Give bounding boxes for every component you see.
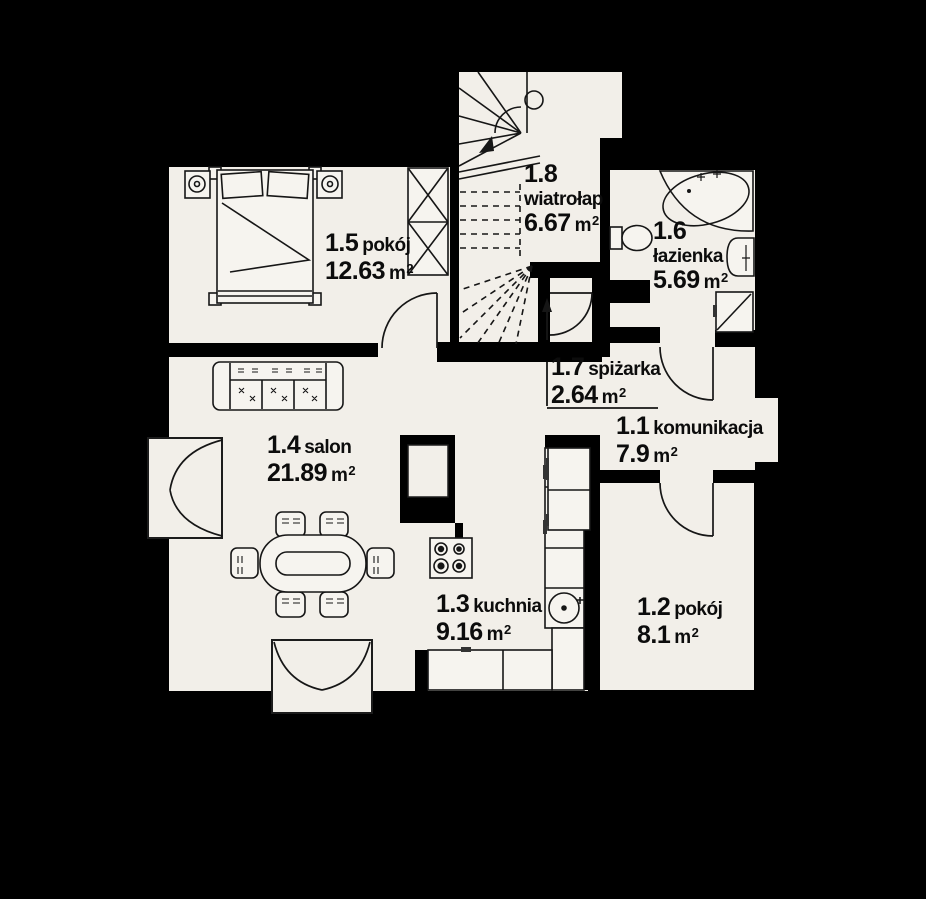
floor-stairs-lower bbox=[459, 262, 538, 348]
room-area: 9.16 m2 bbox=[436, 620, 542, 646]
room-label-salon: 1.4 salon 21.89 m2 bbox=[267, 433, 355, 486]
stove-icon bbox=[430, 538, 472, 578]
room-area: 7.9 m2 bbox=[616, 442, 763, 468]
room-label-spizarka: 1.7 spiżarka 2.64 m2 bbox=[551, 355, 660, 408]
shower-icon bbox=[713, 292, 753, 332]
floor-bedroom-door-opening bbox=[378, 343, 437, 362]
room-id-name: 1.4 salon bbox=[267, 433, 355, 459]
room-id-name: 1.5 pokój bbox=[325, 231, 413, 257]
room-area: 21.89 m2 bbox=[267, 461, 355, 487]
room-id-name: 1.7 spiżarka bbox=[551, 355, 660, 381]
washbasin-icon bbox=[727, 238, 754, 276]
room-area: 6.67 m2 bbox=[524, 211, 603, 237]
room-label-wiatrolap: 1.8 wiatrołap 6.67 m2 bbox=[524, 162, 603, 236]
room-id: 1.6 bbox=[653, 219, 728, 245]
room-label-pokoj-1-5: 1.5 pokój 12.63 m2 bbox=[325, 231, 413, 284]
floor-room-door-opening bbox=[660, 470, 713, 483]
room-label-komunikacja: 1.1 komunikacja 7.9 m2 bbox=[616, 414, 763, 467]
double-bed-icon bbox=[209, 167, 321, 305]
sofa-icon bbox=[213, 362, 343, 410]
room-label-pokoj-1-2: 1.2 pokój 8.1 m2 bbox=[637, 595, 722, 648]
room-area: 8.1 m2 bbox=[637, 623, 722, 649]
room-label-kuchnia: 1.3 kuchnia 9.16 m2 bbox=[436, 592, 542, 645]
floor-plan: 1.1 komunikacja 7.9 m2 1.2 pokój 8.1 m2 … bbox=[0, 0, 926, 899]
terrace-french-door-box bbox=[272, 640, 372, 713]
fridge-icon bbox=[546, 448, 590, 530]
room-id-name: 1.3 kuchnia bbox=[436, 592, 542, 618]
room-name: łazienka bbox=[653, 247, 728, 266]
room-id: 1.8 bbox=[524, 162, 603, 188]
floor-pantry bbox=[550, 278, 592, 342]
nightstand-icon bbox=[317, 171, 342, 198]
nightstand-icon bbox=[185, 171, 210, 198]
left-french-door-box bbox=[148, 438, 222, 538]
room-area: 12.63 m2 bbox=[325, 259, 413, 285]
room-label-lazienka: 1.6 łazienka 5.69 m2 bbox=[653, 219, 728, 293]
room-id-name: 1.1 komunikacja bbox=[616, 414, 763, 440]
room-area: 2.64 m2 bbox=[551, 383, 660, 409]
toilet-icon bbox=[610, 226, 652, 251]
floor-plan-drawing bbox=[0, 0, 926, 899]
floor-room-1-2 bbox=[600, 483, 754, 690]
room-area: 5.69 m2 bbox=[653, 268, 728, 294]
floor-bathroom-door-opening bbox=[660, 327, 715, 347]
chimney-niche bbox=[408, 445, 448, 497]
room-name: wiatrołap bbox=[524, 190, 603, 209]
room-id-name: 1.2 pokój bbox=[637, 595, 722, 621]
wardrobe-icon bbox=[408, 168, 448, 275]
